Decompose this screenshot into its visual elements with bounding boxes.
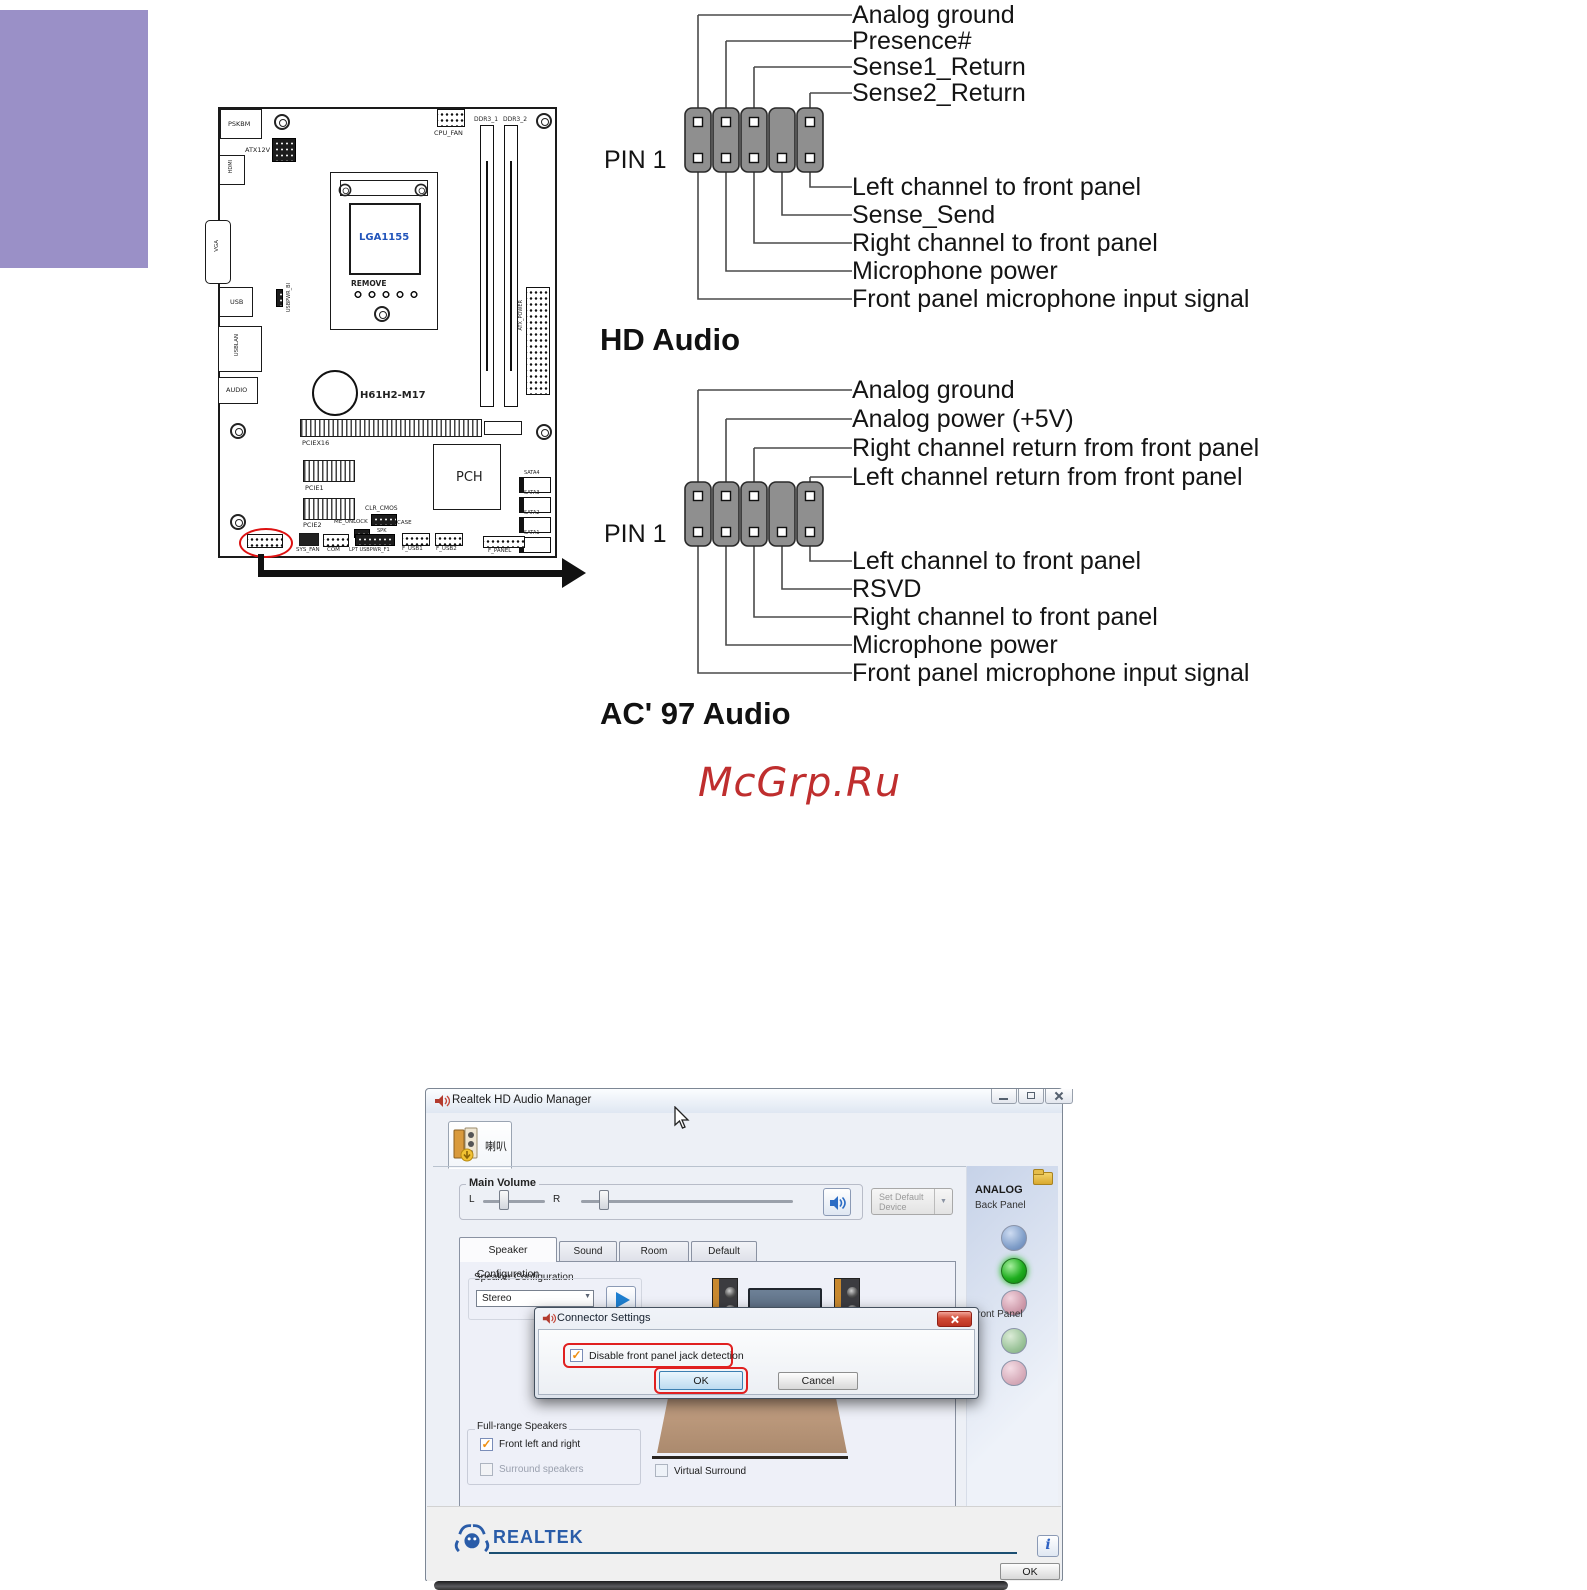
sata1-label: SATA1 [524, 530, 540, 536]
full-range-label: Full-range Speakers [475, 1421, 569, 1432]
ac97-pin-label: Right channel to front panel [852, 604, 1158, 630]
window-titlebar[interactable]: Realtek HD Audio Manager [426, 1089, 1062, 1113]
dialog-cancel-button[interactable]: Cancel [778, 1372, 858, 1390]
pcie2-label: PCIE2 [303, 521, 322, 529]
close-button[interactable] [1045, 1089, 1073, 1104]
window-ok-button[interactable]: OK [1000, 1563, 1060, 1580]
ac97-pin-label: Analog ground [852, 377, 1015, 403]
pciex16-slot [300, 419, 482, 437]
screw-hole [230, 514, 246, 530]
hd-pin-label: Front panel microphone input signal [852, 286, 1249, 312]
f-usb1-label: F_USB1 [402, 546, 423, 552]
socket-screw [374, 306, 390, 322]
lpt-usbpwr-header [355, 534, 395, 546]
screw-hole [230, 423, 246, 439]
clr-cmos-label: CLR_CMOS [365, 505, 398, 512]
analog-title: ANALOG [975, 1184, 1023, 1196]
ac97-pin-label: Analog power (+5V) [852, 406, 1074, 432]
ac97-pin-label: Left channel return from front panel [852, 464, 1243, 490]
ac97-pin-label: Right channel return from front panel [852, 435, 1259, 461]
folder-icon[interactable] [1033, 1172, 1053, 1185]
window-title: Realtek HD Audio Manager [452, 1094, 591, 1106]
chevron-down-icon: ▼ [940, 1198, 947, 1205]
realtek-hd-audio-manager-window: Realtek HD Audio Manager 喇叭 Main Volume … [425, 1088, 1063, 1581]
volume-slider-thumb[interactable] [599, 1190, 609, 1210]
ac97-pin-label: Microphone power [852, 632, 1058, 658]
realtek-brand-text: REALTEK [493, 1527, 584, 1548]
ac97-header-graphic [640, 378, 860, 678]
clr-cmos-jumper [371, 514, 397, 526]
usb-lan-port [218, 326, 262, 372]
speaker-configuration-value: Stereo [482, 1293, 511, 1304]
f-audio-highlight-circle [239, 528, 293, 558]
atx-power-connector [526, 287, 550, 395]
mouse-cursor [674, 1106, 690, 1130]
hd-audio-header-graphic [640, 0, 860, 312]
audio-port-label: AUDIO [226, 386, 247, 394]
hd-pin-label: Right channel to front panel [852, 230, 1158, 256]
sata2-label: SATA2 [524, 510, 540, 516]
info-icon: i [1045, 1537, 1050, 1553]
realtek-underline [489, 1552, 1017, 1554]
atx-power-label: ATX_POWER [518, 300, 524, 331]
screw-hole [536, 113, 552, 129]
check-icon: ✓ [571, 1348, 581, 1362]
speakers-device-icon [453, 1127, 483, 1163]
balance-slider-thumb[interactable] [499, 1190, 509, 1210]
line-out-jack[interactable] [1001, 1258, 1027, 1284]
vga-port [205, 220, 231, 284]
speaker-volume-icon [829, 1195, 847, 1211]
surround-speakers-checkbox[interactable] [480, 1463, 493, 1476]
hd-audio-title: HD Audio [600, 322, 740, 358]
dialog-title: Connector Settings [557, 1312, 651, 1324]
balance-right-label: R [553, 1194, 560, 1205]
tab-room-correction[interactable]: Room Correction [619, 1241, 689, 1262]
f-usb2-label: F_USB2 [436, 546, 457, 552]
tab-speaker-configuration[interactable]: Speaker Configuration [459, 1237, 557, 1262]
socket-screw [339, 184, 352, 197]
volume-slider-track[interactable] [581, 1200, 793, 1203]
ddr3-1-label: DDR3_1 [474, 116, 498, 123]
ddr3-slot-1 [480, 125, 494, 407]
dialog-body: ✓ Disable front panel jack detection OK … [538, 1329, 975, 1395]
dialog-close-button[interactable] [937, 1311, 972, 1327]
callout-arrow-head [562, 558, 586, 588]
back-panel-label: Back Panel [975, 1200, 1026, 1211]
case-label: CASE [397, 520, 412, 526]
ac97-pin-label: RSVD [852, 576, 921, 602]
ac97-pin1-label: PIN 1 [604, 520, 667, 549]
ac97-audio-title: AC' 97 Audio [600, 696, 791, 732]
balance-slider-track[interactable] [483, 1200, 545, 1203]
pch-label: PCH [456, 470, 483, 485]
line-in-jack[interactable] [1001, 1225, 1027, 1251]
usbpwr-bi-jumper [276, 289, 283, 307]
screw-hole [536, 424, 552, 440]
balance-left-label: L [469, 1194, 475, 1205]
tab-default-format[interactable]: Default Format [691, 1241, 757, 1262]
socket-contact-row [351, 290, 421, 299]
info-button[interactable]: i [1037, 1535, 1059, 1557]
tab-speakers-device-label: 喇叭 [485, 1138, 507, 1154]
ps2-port-label: PSKBM [228, 120, 250, 128]
virtual-surround-label: Virtual Surround [674, 1466, 746, 1477]
usbpwr-bi-label: USBPWR_BI [286, 283, 292, 312]
front-mic-jack[interactable] [1001, 1360, 1027, 1386]
hd-pin-label: Presence# [852, 28, 972, 54]
surround-speakers-label: Surround speakers [499, 1464, 584, 1475]
main-volume-label: Main Volume [466, 1177, 539, 1189]
pcie1-label: PCIE1 [305, 484, 324, 492]
tab-sound-effects[interactable]: Sound Effects [559, 1241, 617, 1262]
desk-image [657, 1396, 847, 1453]
com-label: COM [327, 547, 340, 553]
window-bottom-bar: REALTEK i OK [427, 1506, 1061, 1581]
callout-arrow-horizontal [258, 570, 562, 577]
front-headphone-jack[interactable] [1001, 1328, 1027, 1354]
f-panel-label: F_PANEL [488, 548, 511, 554]
me-unlock-label: ME_UNLOCK [334, 519, 368, 525]
socket-screw [415, 184, 428, 197]
set-default-device-label: Set Default Device [879, 1193, 934, 1212]
usb-lan-label: USBLAN [234, 334, 240, 356]
tab-speakers-device[interactable]: 喇叭 [448, 1121, 512, 1169]
set-default-device-button[interactable]: Set Default Device ▼ [871, 1188, 953, 1215]
play-icon [616, 1292, 630, 1308]
vga-port-label: VGA [214, 240, 220, 252]
sys-fan-connector [299, 533, 319, 546]
com-header [323, 534, 349, 547]
manual-page: PSKBM ATX12V HDMI VGA USB USBPWR_BI USBL… [0, 0, 1587, 1590]
sata4-label: SATA4 [524, 470, 540, 476]
dialog-ok-button[interactable]: OK [659, 1371, 743, 1390]
socket-remove-label: REMOVE [351, 279, 386, 288]
full-range-group [467, 1429, 641, 1485]
cpu-socket-label: LGA1155 [359, 232, 409, 243]
speaker-icon [542, 1312, 556, 1325]
realtek-crab-logo [453, 1521, 491, 1553]
speaker-icon [434, 1094, 450, 1108]
hd-pin-label: Microphone power [852, 258, 1058, 284]
connector-settings-dialog: Connector Settings ✓ Disable front panel… [534, 1307, 979, 1399]
mute-button[interactable] [823, 1188, 851, 1216]
disable-jack-detection-label: Disable front panel jack detection [589, 1350, 744, 1362]
board-model-label: H61H2-M17 [360, 390, 426, 401]
desk-edge-line [652, 1456, 848, 1459]
hd-pin1-label: PIN 1 [604, 146, 667, 175]
virtual-surround-checkbox[interactable] [655, 1464, 668, 1477]
watermark: McGrp.Ru [698, 760, 901, 806]
hd-pin-label: Sense_Send [852, 202, 995, 228]
atx12v-label: ATX12V [245, 146, 270, 154]
hd-pin-label: Sense1_Return [852, 54, 1026, 80]
front-left-right-label: Front left and right [499, 1439, 580, 1450]
ddr3-2-label: DDR3_2 [503, 116, 527, 123]
sata3-label: SATA3 [524, 490, 540, 496]
cpu-fan-connector [437, 109, 465, 127]
hdmi-port-label: HDMI [228, 160, 234, 173]
screenshot-bottom-edge [434, 1581, 1008, 1590]
f-panel-header [483, 536, 525, 548]
pcie2-slot [303, 498, 355, 520]
ac97-pin-label: Left channel to front panel [852, 548, 1141, 574]
sys-fan-label: SYS_FAN [296, 547, 320, 553]
atx12v-connector [272, 138, 296, 162]
speaker-configuration-select[interactable]: Stereo ▼ [476, 1290, 594, 1307]
screw-hole [274, 114, 290, 130]
maximize-button[interactable] [1018, 1089, 1044, 1104]
hd-pin-label: Left channel to front panel [852, 174, 1141, 200]
lpt-usbpwr-label: LPT USBPWR_F1 [349, 547, 390, 553]
f-usb2-header [435, 533, 463, 546]
analog-jack-panel: ANALOG Back Panel Front Panel [966, 1166, 1058, 1516]
maximize-icon [1027, 1092, 1035, 1099]
front-left-right-checkbox[interactable]: ✓ [480, 1438, 493, 1451]
chevron-down-icon: ▼ [584, 1293, 591, 1300]
ac97-pin-label: Front panel microphone input signal [852, 660, 1249, 686]
cpu-fan-label: CPU_FAN [434, 129, 463, 137]
set-default-device-arrow[interactable]: ▼ [934, 1189, 952, 1214]
purple-corner-block [0, 10, 148, 268]
pciex16-label: PCIEX16 [302, 439, 329, 447]
minimize-icon [999, 1098, 1008, 1100]
pcie1-slot [303, 460, 355, 482]
content-divider [433, 1166, 1057, 1167]
battery [312, 370, 358, 416]
f-usb1-header [402, 533, 430, 546]
hd-pin-label: Sense2_Return [852, 80, 1026, 106]
disable-jack-detection-checkbox[interactable]: ✓ [570, 1349, 583, 1362]
check-icon: ✓ [481, 1437, 491, 1451]
usb-port-label: USB [230, 298, 243, 306]
ddr3-slot-2 [504, 125, 518, 407]
minimize-button[interactable] [991, 1089, 1017, 1104]
hd-pin-label: Analog ground [852, 2, 1015, 28]
pciex16-latch [484, 421, 522, 435]
